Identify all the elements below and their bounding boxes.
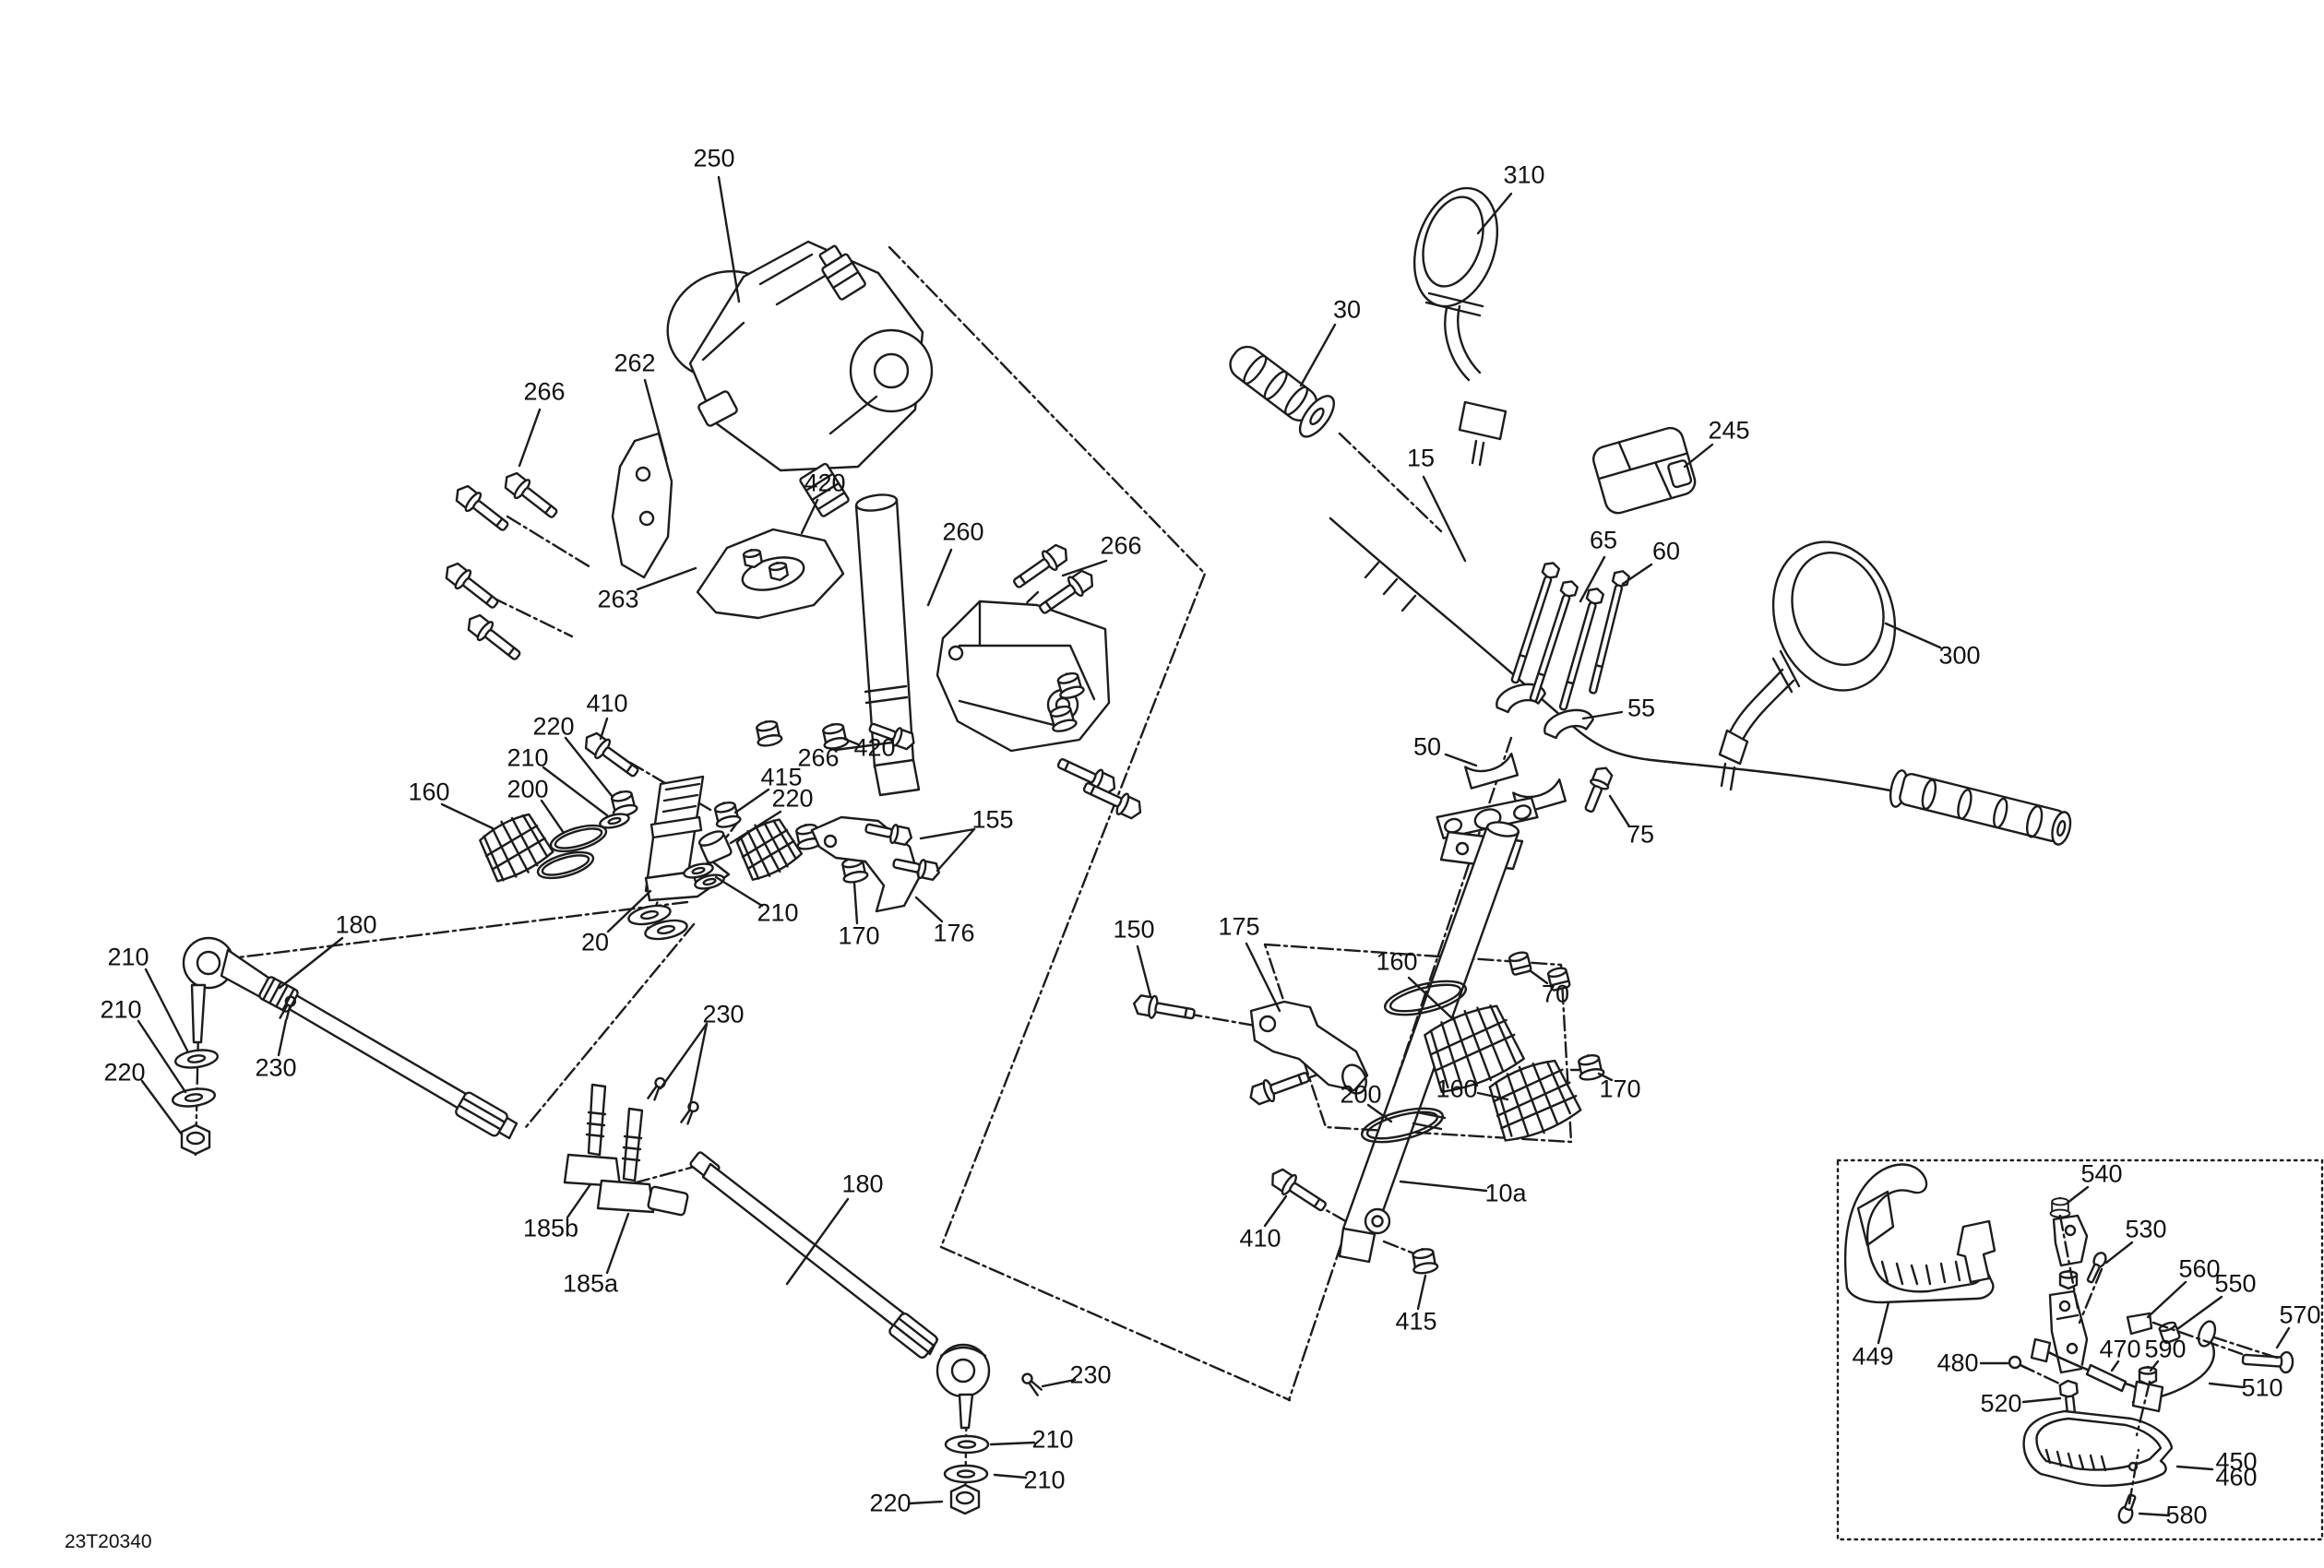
callout-170-37: 170 [1599, 1077, 1640, 1102]
callout-210-52: 210 [1023, 1468, 1065, 1493]
callout-220-13: 220 [771, 787, 813, 812]
callout-420-15: 420 [853, 736, 895, 761]
washer-210-left1 [174, 1048, 219, 1070]
nut-mid [2060, 1271, 2077, 1289]
leader-210-42 [146, 969, 187, 1051]
callout-410-39: 410 [1239, 1227, 1281, 1252]
callout-160-11: 160 [408, 780, 449, 805]
axis-266-left-1 [507, 517, 590, 567]
leader-220-53 [910, 1502, 942, 1503]
handguard-strap [2054, 1216, 2087, 1265]
tie-rod-upper-180 [184, 938, 517, 1138]
nut-590 [2139, 1367, 2156, 1384]
bolt-75 [1580, 765, 1615, 814]
callout-510-63: 510 [2241, 1376, 2282, 1401]
switch-245 [1591, 425, 1698, 517]
callout-480-60: 480 [1937, 1351, 1978, 1376]
callout-470-61: 470 [2099, 1337, 2140, 1362]
callout-160-34: 160 [1376, 950, 1417, 975]
callout-520-64: 520 [1980, 1392, 2021, 1417]
callout-449-59: 449 [1852, 1345, 1893, 1370]
callout-20-18: 20 [581, 931, 609, 956]
leader-185b-47 [567, 1184, 590, 1218]
callout-220-44: 220 [103, 1061, 145, 1086]
bolt-175b [1247, 1066, 1312, 1108]
callout-60-26: 60 [1652, 540, 1680, 564]
callout-540-54: 540 [2080, 1162, 2122, 1187]
leader-230-45 [279, 1020, 286, 1055]
leader-260-5 [928, 550, 951, 605]
bracket-262 [613, 434, 672, 577]
axis-tie-rod-left [223, 902, 687, 959]
callout-250-0: 250 [693, 147, 734, 172]
callout-50-29: 50 [1413, 735, 1441, 760]
leader-266-2 [519, 410, 540, 466]
callout-150-32: 150 [1113, 918, 1154, 943]
callout-210-17: 210 [757, 901, 798, 926]
leader-15-23 [1424, 477, 1465, 561]
leader-10a-38 [1400, 1182, 1486, 1191]
leader-210-9 [543, 767, 607, 815]
callout-10a-38: 10a [1484, 1182, 1526, 1206]
callout-262-1: 262 [614, 351, 655, 376]
leader-176-20 [916, 897, 942, 921]
nut-220-left [182, 1125, 209, 1154]
leader-200-10 [542, 801, 564, 833]
tie-rod-lower-180 [689, 1151, 989, 1428]
leader-160-11 [442, 804, 493, 828]
callout-160-36: 160 [1436, 1077, 1477, 1102]
callout-230-45: 230 [255, 1056, 296, 1081]
leader-30-21 [1301, 325, 1335, 386]
callout-176-20: 176 [933, 921, 974, 946]
callout-170-19: 170 [838, 924, 879, 949]
bolt-410a [580, 729, 643, 782]
plate-263 [697, 529, 843, 618]
callout-230-50: 230 [1069, 1363, 1111, 1388]
document-code: 23T20340 [65, 1531, 152, 1553]
leader-415-40 [1418, 1276, 1425, 1309]
cotter-pin-230c [1020, 1372, 1043, 1396]
nut-415b [1411, 1247, 1438, 1275]
parts-diagram-page: 2502622664202632602664102202102001604152… [0, 0, 2324, 1568]
callout-210-43: 210 [100, 998, 141, 1023]
callout-180-41: 180 [335, 913, 376, 938]
callout-300-27: 300 [1938, 644, 1980, 669]
bracket-260 [937, 601, 1109, 751]
callout-580-67: 580 [2165, 1503, 2207, 1528]
leader-185a-48 [607, 1214, 628, 1273]
callout-185b-47: 185b [523, 1217, 578, 1241]
leader-210-51 [991, 1443, 1034, 1444]
callout-65-25: 65 [1590, 529, 1617, 553]
callout-266-14: 266 [797, 746, 839, 771]
callout-155-16: 155 [971, 808, 1013, 833]
bearing-160-stem [731, 813, 804, 885]
bearing-160-left [473, 807, 555, 887]
callout-266-2: 266 [523, 380, 565, 405]
callout-310-22: 310 [1503, 163, 1544, 188]
leader-410-7 [601, 719, 607, 739]
leader-410-39 [1265, 1196, 1286, 1226]
callout-185a-48: 185a [563, 1272, 618, 1297]
callout-245-24: 245 [1708, 419, 1749, 444]
dps-unit-250 [649, 242, 932, 517]
callout-266-6: 266 [1100, 534, 1141, 559]
leader-180-41 [280, 938, 342, 988]
leader-210-52 [995, 1475, 1026, 1478]
nut-540 [2051, 1198, 2070, 1218]
callout-180-49: 180 [841, 1172, 883, 1197]
washer-210-bot1 [946, 1436, 988, 1453]
callout-220-53: 220 [869, 1491, 911, 1516]
handlebar-15 [1330, 518, 2073, 847]
callout-530-55: 530 [2125, 1218, 2166, 1242]
callout-260-5: 260 [942, 520, 983, 545]
callout-410-7: 410 [586, 692, 627, 717]
callout-15-23: 15 [1407, 446, 1435, 471]
callout-460-66: 460 [2215, 1466, 2257, 1491]
axis-tie-rod-left2 [526, 924, 694, 1127]
callout-550-57: 550 [2214, 1272, 2256, 1297]
callout-70-31: 70 [1542, 982, 1569, 1007]
leader-170-19 [854, 883, 857, 923]
leader-220-44 [142, 1081, 182, 1134]
grip-30 [1220, 335, 1340, 442]
callout-220-8: 220 [532, 715, 574, 740]
callout-210-9: 210 [507, 746, 548, 771]
callout-30-21: 30 [1333, 298, 1361, 323]
washer-210-left2 [172, 1087, 216, 1109]
washer-210-bot2 [945, 1466, 987, 1482]
axis-266-left-2 [493, 598, 572, 636]
callout-570-58: 570 [2279, 1303, 2320, 1328]
callout-415-40: 415 [1395, 1310, 1436, 1335]
bushing-220b [697, 828, 733, 863]
boundary-main [889, 247, 1290, 1400]
callout-210-42: 210 [107, 945, 149, 970]
leader-420-3 [802, 500, 817, 533]
callout-175-33: 175 [1218, 915, 1259, 940]
callout-590-62: 590 [2144, 1337, 2186, 1362]
nut-220-bot [951, 1485, 979, 1514]
callout-55-28: 55 [1627, 696, 1655, 721]
callout-200-35: 200 [1340, 1083, 1381, 1108]
callout-200-10: 200 [507, 778, 548, 802]
leader-415-12 [735, 790, 769, 813]
leader-50-29 [1446, 754, 1476, 766]
bolts-266-left [441, 469, 562, 666]
diagram-canvas [0, 0, 2324, 1568]
cotter-pin-230b1 [647, 1076, 667, 1102]
callout-75-30: 75 [1627, 823, 1654, 848]
grip-right [1898, 772, 2073, 846]
leader-210-17 [716, 877, 762, 906]
oring-200a [548, 820, 609, 856]
callout-230-46: 230 [702, 1003, 744, 1028]
callout-420-3: 420 [804, 471, 845, 496]
callout-263-4: 263 [597, 588, 638, 612]
callout-210-51: 210 [1031, 1428, 1073, 1453]
mirror-310 [1400, 177, 1512, 465]
